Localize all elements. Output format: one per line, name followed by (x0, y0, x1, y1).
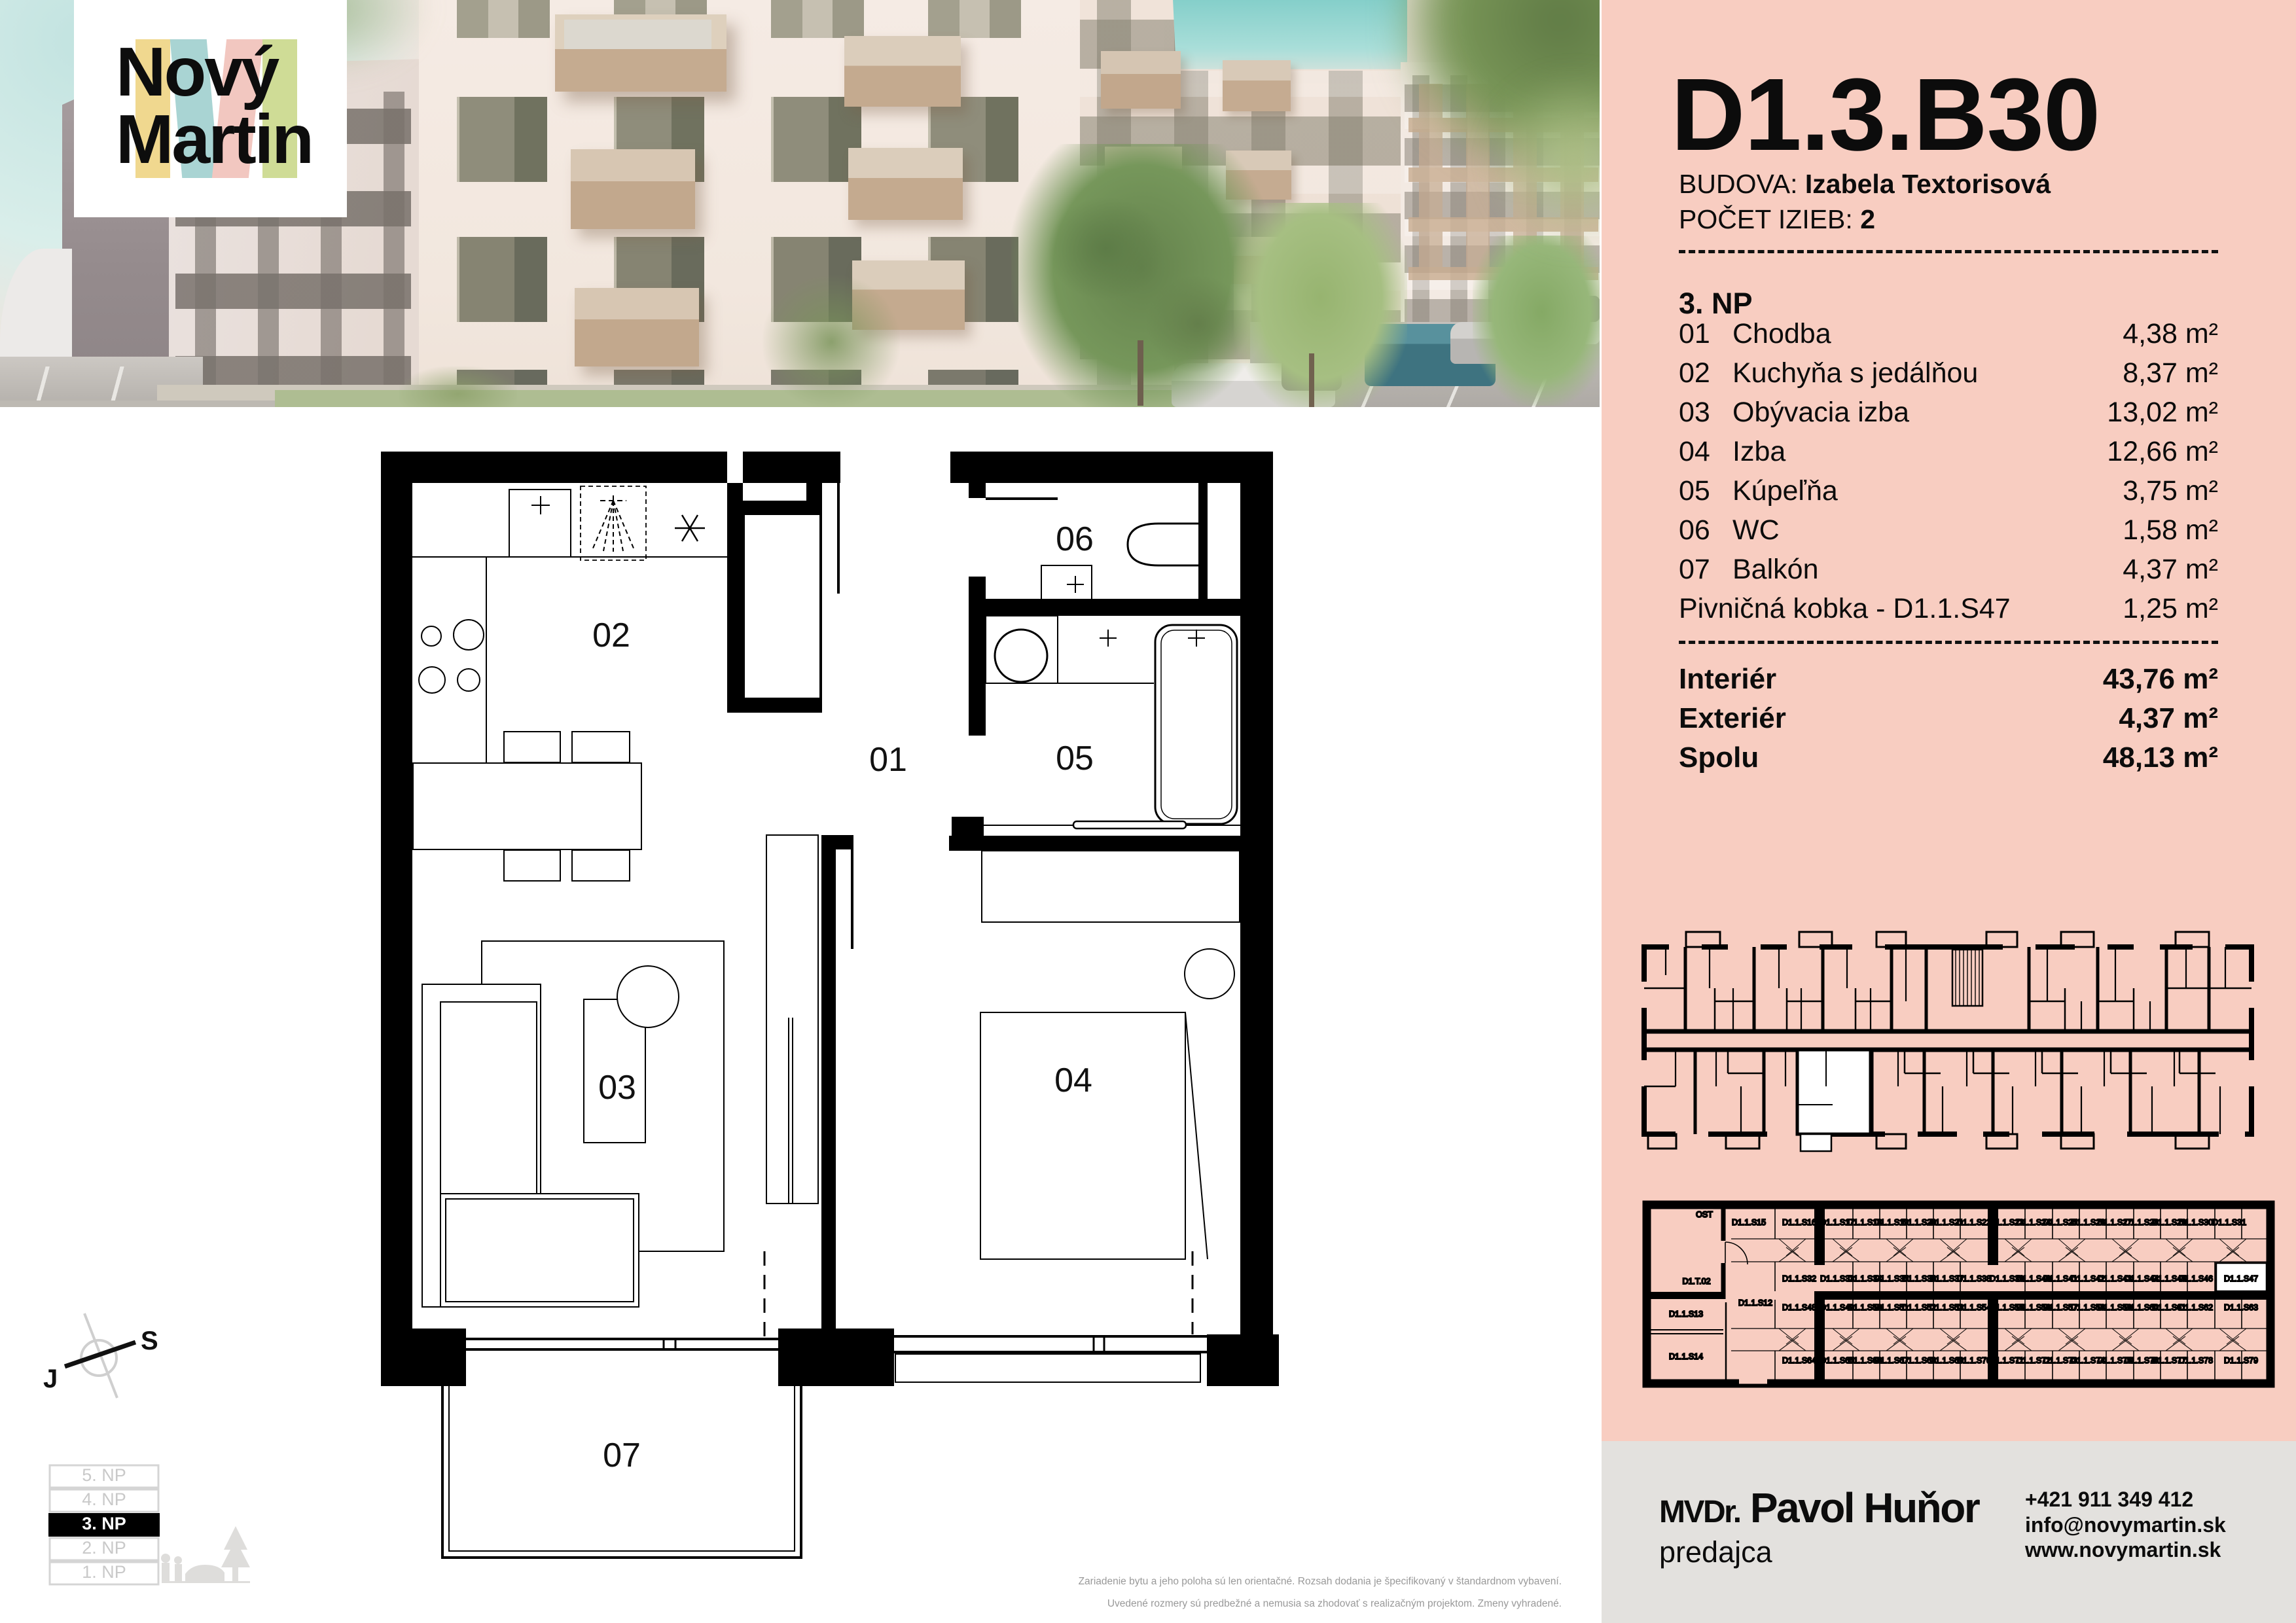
svg-text:D1.1.S46: D1.1.S46 (2179, 1274, 2213, 1283)
svg-text:D1.1.S62: D1.1.S62 (2179, 1303, 2213, 1312)
svg-text:D1.1.S22: D1.1.S22 (1957, 1218, 1991, 1227)
svg-text:06: 06 (1056, 520, 1094, 558)
svg-text:07: 07 (603, 1436, 641, 1474)
svg-text:04: 04 (1054, 1061, 1092, 1099)
svg-text:3. NP: 3. NP (82, 1514, 126, 1533)
svg-text:D1.1.S47: D1.1.S47 (2224, 1274, 2258, 1283)
svg-text:D1.1.S14: D1.1.S14 (1669, 1352, 1703, 1361)
svg-text:D1.1.S13: D1.1.S13 (1669, 1310, 1703, 1319)
svg-text:01: 01 (869, 741, 907, 779)
svg-text:D1.1.S30: D1.1.S30 (2179, 1218, 2213, 1227)
svg-text:D1.1.S48: D1.1.S48 (1782, 1303, 1816, 1312)
svg-text:D1.1.S15: D1.1.S15 (1732, 1218, 1766, 1227)
svg-text:D1.1.S78: D1.1.S78 (2179, 1356, 2213, 1365)
svg-text:D1.T.02: D1.T.02 (1682, 1277, 1710, 1286)
svg-text:D1.1.S38: D1.1.S38 (1957, 1274, 1991, 1283)
svg-text:D1.1.S54: D1.1.S54 (1957, 1303, 1991, 1312)
svg-text:D1.1.S31: D1.1.S31 (2212, 1218, 2246, 1227)
svg-text:S: S (141, 1327, 158, 1355)
svg-text:D1.1.S70: D1.1.S70 (1957, 1356, 1991, 1365)
svg-text:5. NP: 5. NP (82, 1465, 126, 1485)
svg-text:OST: OST (1696, 1210, 1713, 1219)
svg-text:03: 03 (598, 1069, 636, 1107)
svg-text:D1.1.S63: D1.1.S63 (2224, 1303, 2258, 1312)
svg-text:05: 05 (1056, 740, 1094, 777)
svg-text:D1.1.S12: D1.1.S12 (1738, 1298, 1772, 1308)
svg-text:D1.1.S79: D1.1.S79 (2224, 1356, 2258, 1365)
svg-text:4. NP: 4. NP (82, 1489, 126, 1509)
svg-text:D1.1.S16: D1.1.S16 (1782, 1218, 1816, 1227)
svg-text:02: 02 (592, 616, 630, 654)
svg-text:D1.1.S64: D1.1.S64 (1782, 1356, 1816, 1365)
svg-text:2. NP: 2. NP (82, 1538, 126, 1558)
svg-text:J: J (43, 1364, 58, 1393)
svg-text:1. NP: 1. NP (82, 1562, 126, 1582)
svg-text:D1.1.S32: D1.1.S32 (1782, 1274, 1816, 1283)
